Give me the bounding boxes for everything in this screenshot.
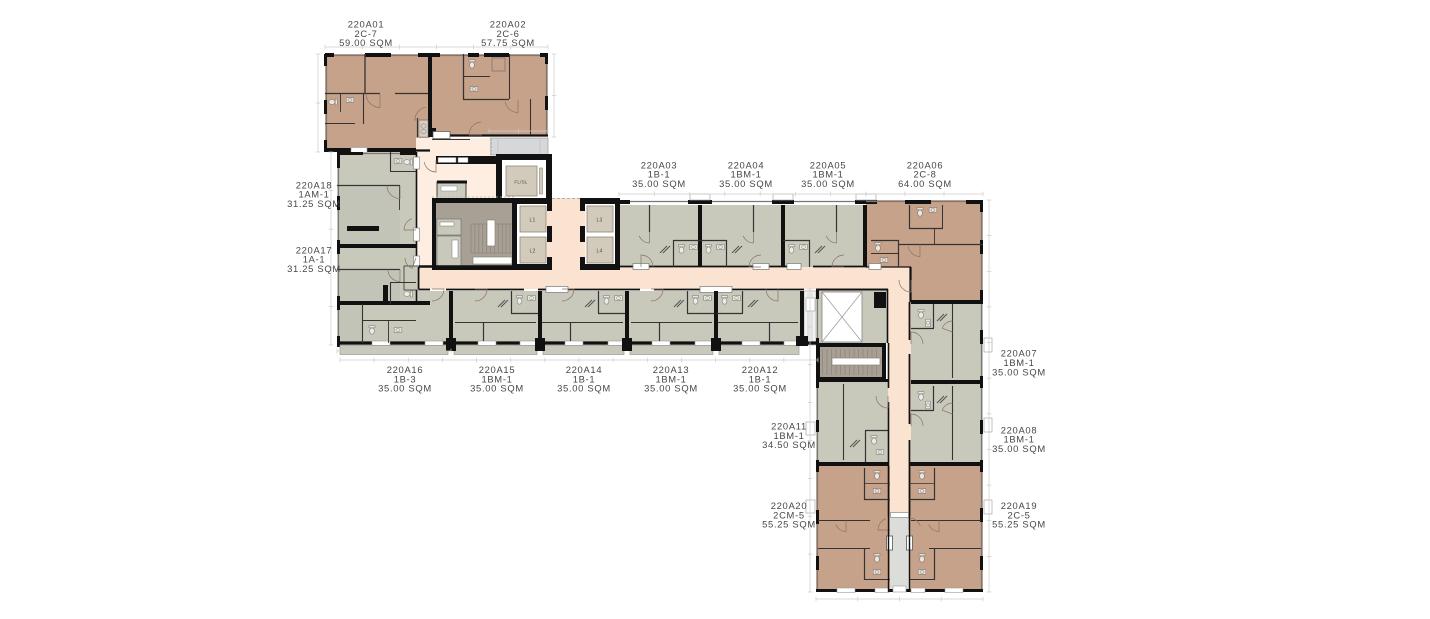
svg-text:31.25 SQM: 31.25 SQM (287, 198, 341, 209)
svg-text:FL/SL: FL/SL (514, 180, 528, 185)
svg-text:35.00 SQM: 35.00 SQM (644, 383, 698, 394)
svg-text:35.00 SQM: 35.00 SQM (733, 383, 787, 394)
svg-text:31.25 SQM: 31.25 SQM (287, 263, 341, 274)
svg-text:64.00 SQM: 64.00 SQM (898, 178, 952, 189)
svg-text:55.25 SQM: 55.25 SQM (992, 519, 1046, 530)
svg-text:34.50 SQM: 34.50 SQM (762, 439, 816, 450)
svg-text:L1: L1 (530, 218, 536, 224)
svg-text:59.00 SQM: 59.00 SQM (339, 37, 393, 48)
svg-text:55.25 SQM: 55.25 SQM (762, 519, 816, 530)
svg-text:35.00 SQM: 35.00 SQM (378, 383, 432, 394)
svg-text:35.00 SQM: 35.00 SQM (801, 178, 855, 189)
svg-text:35.00 SQM: 35.00 SQM (992, 443, 1046, 454)
svg-text:L3: L3 (597, 218, 603, 224)
svg-text:35.00 SQM: 35.00 SQM (632, 178, 686, 189)
svg-text:57.75 SQM: 57.75 SQM (481, 37, 535, 48)
svg-text:L2: L2 (530, 249, 536, 255)
svg-text:35.00 SQM: 35.00 SQM (719, 178, 773, 189)
svg-text:35.00 SQM: 35.00 SQM (470, 383, 524, 394)
svg-text:L4: L4 (597, 249, 603, 255)
svg-text:35.00 SQM: 35.00 SQM (992, 366, 1046, 377)
svg-text:35.00 SQM: 35.00 SQM (557, 383, 611, 394)
